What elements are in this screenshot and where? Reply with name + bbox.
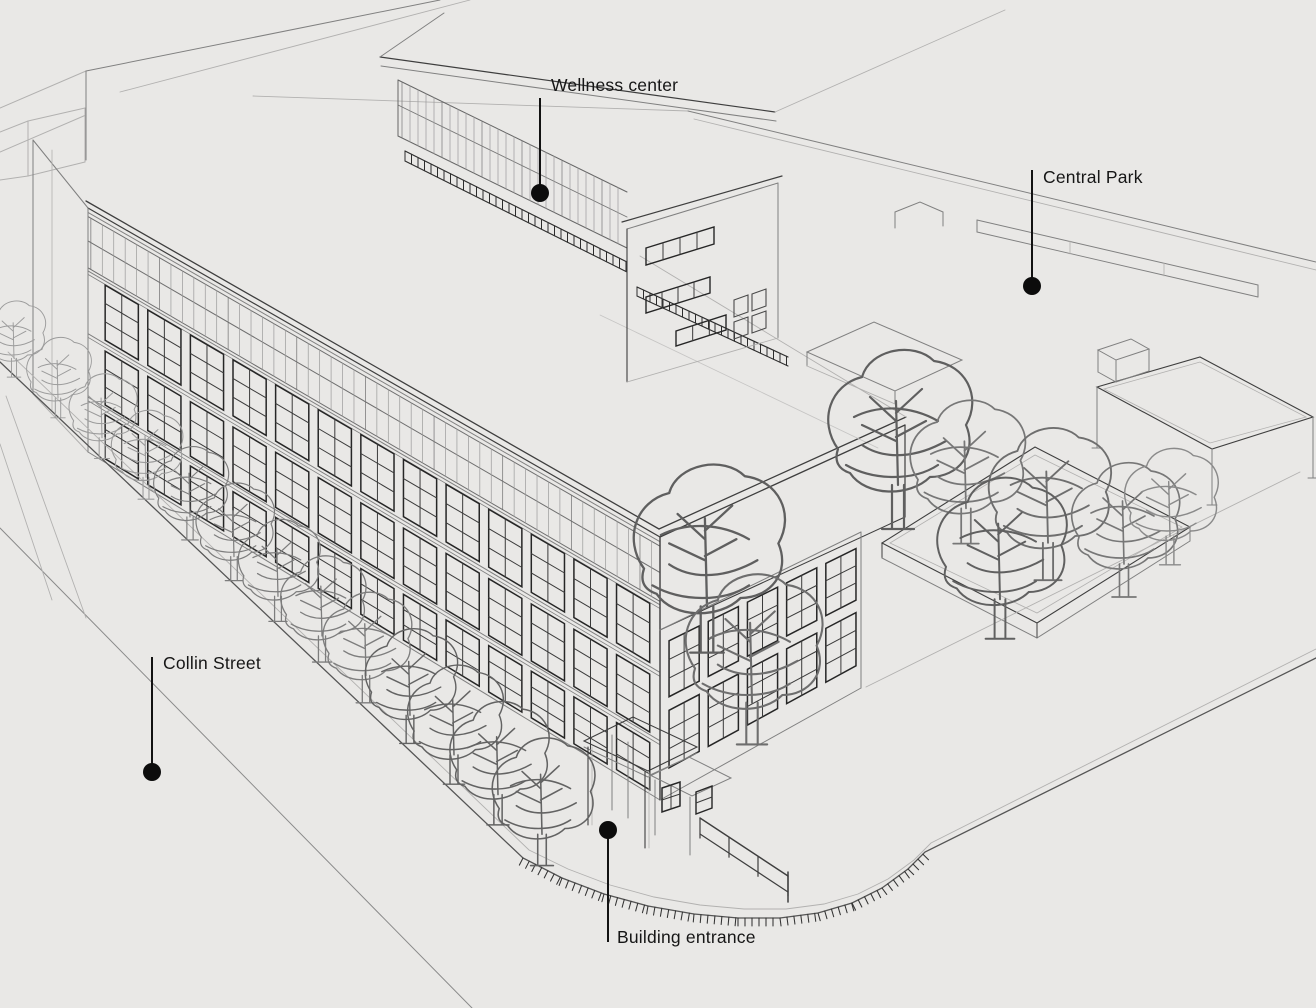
annotation-label[interactable]: Building entrance (617, 927, 756, 947)
annotation-label[interactable]: Central Park (1043, 167, 1143, 187)
marker-dot[interactable] (599, 821, 617, 839)
leader-line (607, 830, 609, 942)
leader-line (539, 98, 541, 193)
leader-line (151, 657, 153, 772)
site-illustration (0, 0, 1316, 1008)
marker-dot[interactable] (531, 184, 549, 202)
site-plan-view: Wellness center Central Park Collin Stre… (0, 0, 1316, 1008)
marker-dot[interactable] (1023, 277, 1041, 295)
leader-line (1031, 170, 1033, 286)
marker-dot[interactable] (143, 763, 161, 781)
annotation-label[interactable]: Collin Street (163, 653, 261, 673)
annotation-label[interactable]: Wellness center (551, 75, 678, 95)
